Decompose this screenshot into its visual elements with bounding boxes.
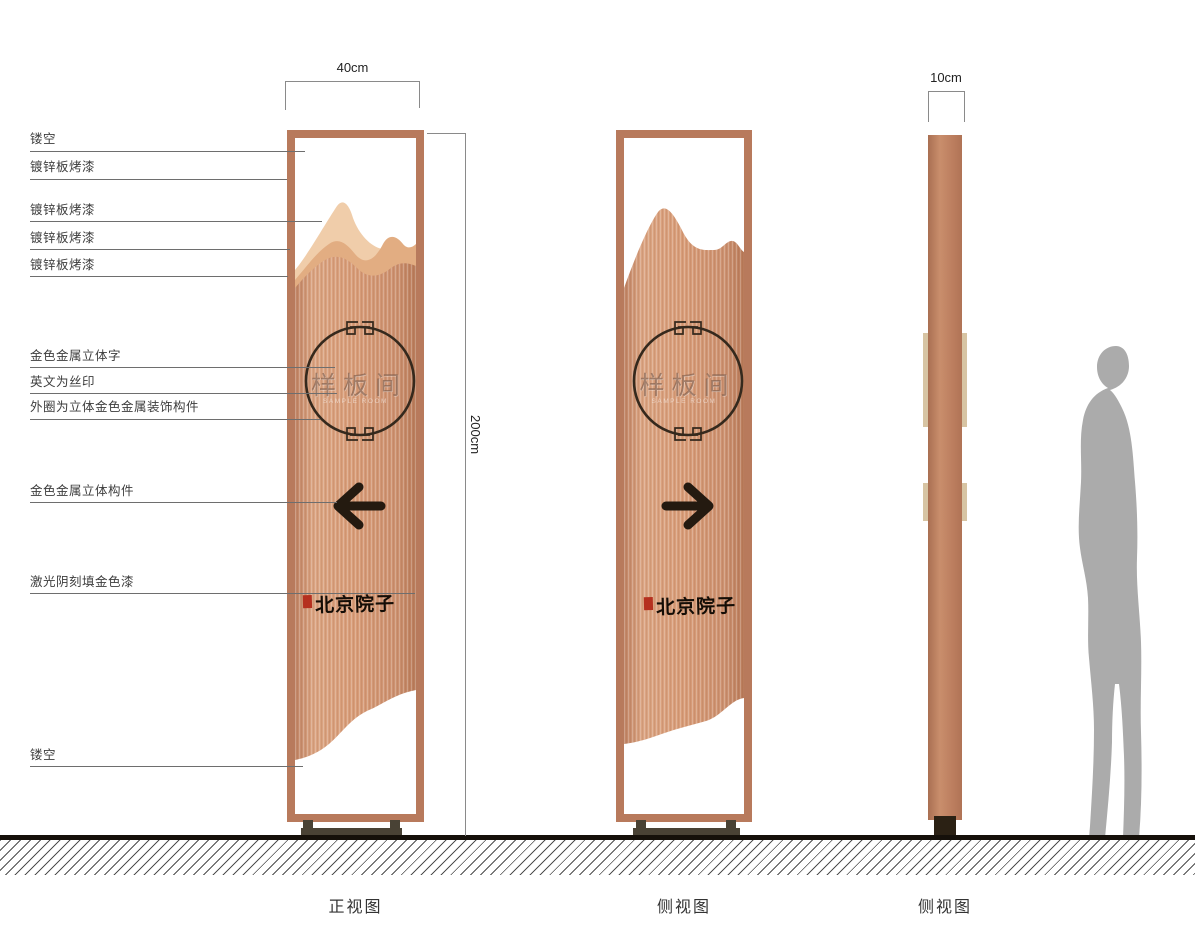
pylon-base-post bbox=[390, 820, 400, 828]
design-drawing-canvas: 镂空 镀锌板烤漆 镀锌板烤漆 镀锌板烤漆 镀锌板烤漆 金色金属立体字 英文为丝印… bbox=[0, 0, 1195, 927]
callout-label: 金色金属立体构件 bbox=[30, 484, 134, 499]
callout-line bbox=[30, 151, 305, 152]
red-seal-icon bbox=[644, 597, 653, 610]
callout-line bbox=[30, 419, 320, 420]
ground-line bbox=[0, 835, 1195, 840]
pylon-front-panel: 样板间 SAMPLE ROOM 北京院子 bbox=[295, 138, 416, 814]
dimension-line-height bbox=[465, 133, 466, 836]
dimension-tick bbox=[427, 133, 465, 134]
brand-calligraphy: 北京院子 bbox=[656, 591, 737, 620]
dimension-tick bbox=[419, 81, 420, 108]
dimension-tick bbox=[928, 91, 929, 122]
pylon-base-post bbox=[726, 820, 736, 828]
callout-line bbox=[30, 766, 303, 767]
callout-line bbox=[30, 502, 337, 503]
callout-label: 镀锌板烤漆 bbox=[30, 231, 95, 246]
callout-line bbox=[30, 367, 335, 368]
callout-label: 英文为丝印 bbox=[30, 375, 95, 390]
arrow-left-icon bbox=[323, 480, 387, 532]
pylon-front-view: 样板间 SAMPLE ROOM 北京院子 bbox=[287, 130, 424, 822]
arrow-right-icon bbox=[660, 480, 724, 532]
room-name-english: SAMPLE ROOM bbox=[624, 398, 744, 405]
room-name-english: SAMPLE ROOM bbox=[295, 398, 416, 405]
callout-label: 镂空 bbox=[30, 132, 56, 147]
callout-line bbox=[30, 221, 322, 222]
callout-line bbox=[30, 179, 287, 180]
pylon-side-profile bbox=[928, 135, 962, 820]
dimension-height: 200cm bbox=[468, 415, 483, 454]
room-name-text: 样板间 bbox=[295, 366, 416, 402]
callout-line bbox=[30, 593, 415, 594]
callout-label: 激光阴刻填金色漆 bbox=[30, 575, 134, 590]
room-name-text: 样板间 bbox=[624, 366, 744, 402]
callout-line bbox=[30, 276, 288, 277]
side-profile-foot bbox=[934, 816, 956, 837]
dimension-bracket bbox=[285, 81, 420, 82]
pylon-side-view: 样板间 SAMPLE ROOM 北京院子 bbox=[616, 130, 752, 822]
ground-hatch bbox=[0, 840, 1195, 875]
human-scale-silhouette bbox=[1038, 342, 1168, 838]
callout-label: 镀锌板烤漆 bbox=[30, 203, 95, 218]
callout-label: 镂空 bbox=[30, 748, 56, 763]
dimension-tick bbox=[964, 91, 965, 122]
callout-line bbox=[30, 249, 290, 250]
dimension-side-width: 10cm bbox=[918, 70, 974, 85]
red-seal-icon bbox=[303, 595, 312, 608]
callout-line bbox=[30, 393, 337, 394]
mountain-artwork bbox=[295, 138, 416, 814]
pylon-base-post bbox=[636, 820, 646, 828]
dimension-front-width: 40cm bbox=[285, 60, 420, 75]
callout-label: 外圈为立体金色金属装饰构件 bbox=[30, 400, 199, 415]
mountain-artwork bbox=[624, 138, 744, 814]
callout-label: 镀锌板烤漆 bbox=[30, 258, 95, 273]
brand-signature: 北京院子 bbox=[644, 591, 737, 620]
callout-label: 镀锌板烤漆 bbox=[30, 160, 95, 175]
pylon-base-post bbox=[303, 820, 313, 828]
caption-side-view: 侧视图 bbox=[616, 893, 752, 917]
dimension-tick bbox=[285, 81, 286, 110]
callout-label: 金色金属立体字 bbox=[30, 349, 121, 364]
pylon-side-panel: 样板间 SAMPLE ROOM 北京院子 bbox=[624, 138, 744, 814]
dimension-bracket bbox=[928, 91, 965, 92]
caption-front-view: 正视图 bbox=[287, 893, 424, 917]
caption-side-profile-view: 侧视图 bbox=[900, 893, 990, 917]
